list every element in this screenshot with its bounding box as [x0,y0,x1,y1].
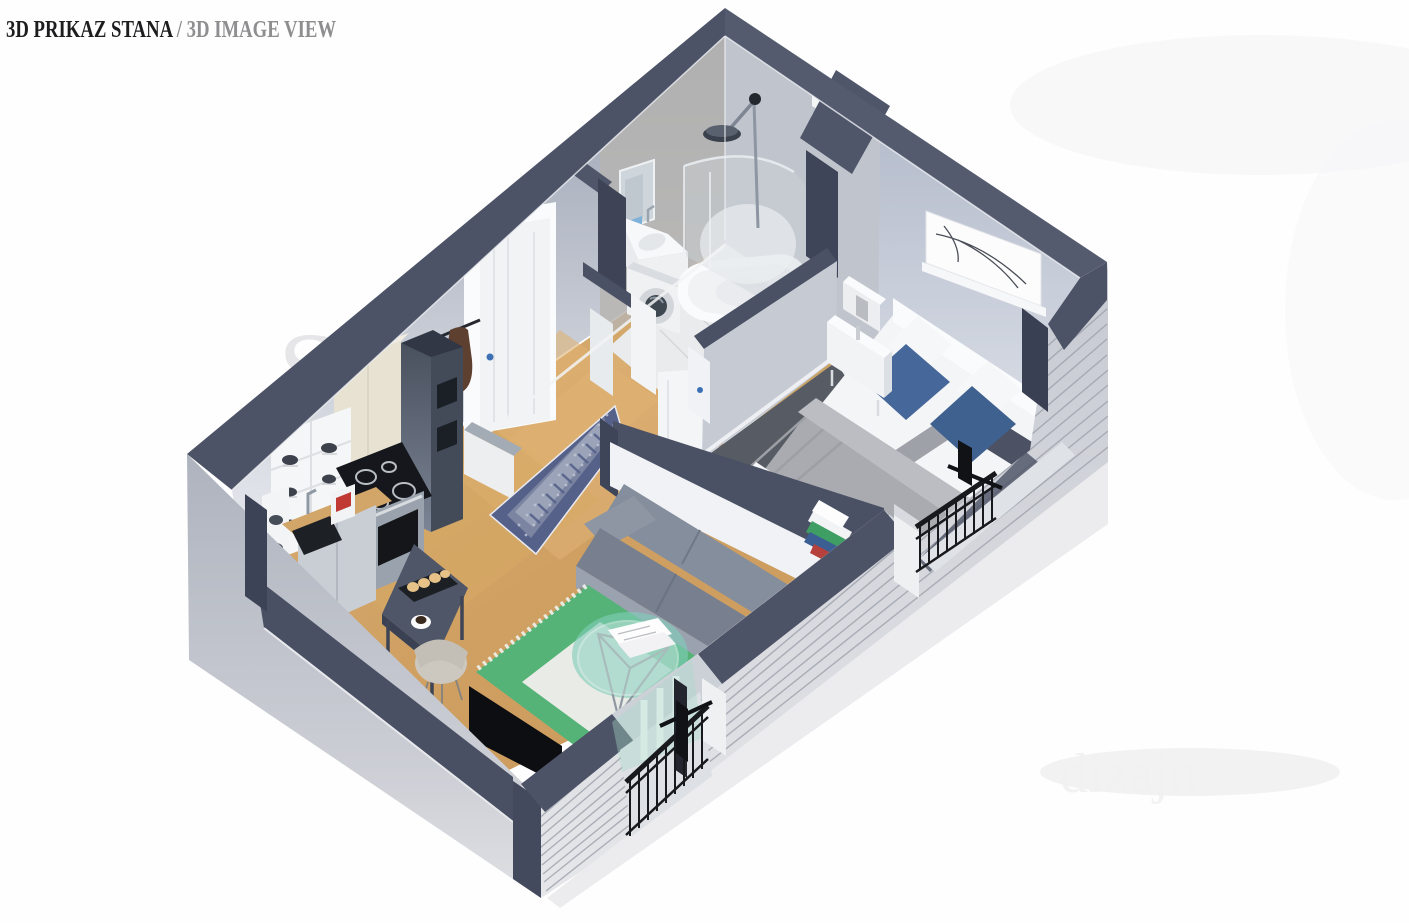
svg-text:dizajn: dizajn [1060,743,1197,805]
